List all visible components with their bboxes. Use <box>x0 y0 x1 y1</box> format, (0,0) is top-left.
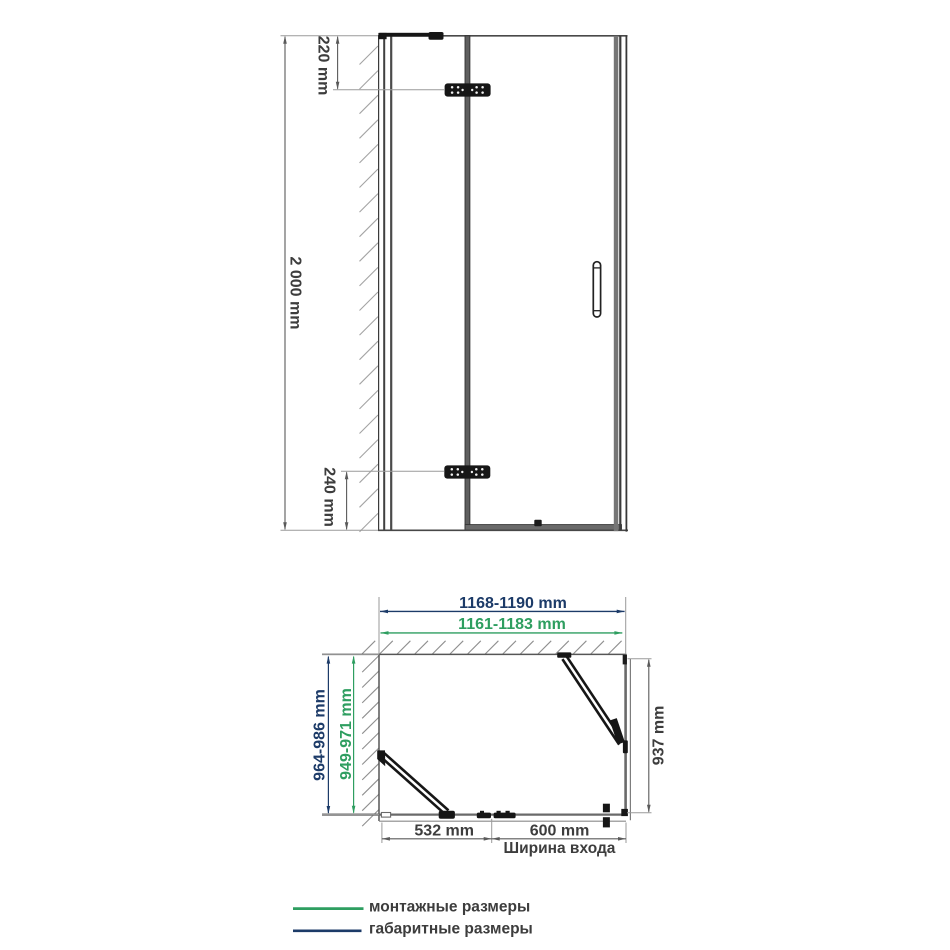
svg-text:532 mm: 532 mm <box>414 822 474 839</box>
svg-text:монтажные размеры: монтажные размеры <box>369 898 530 915</box>
svg-text:220 mm: 220 mm <box>315 36 332 96</box>
svg-text:240 mm: 240 mm <box>321 467 338 527</box>
svg-text:949-971 mm: 949-971 mm <box>338 688 355 780</box>
svg-text:600 mm: 600 mm <box>530 822 590 839</box>
svg-text:1168-1190 mm: 1168-1190 mm <box>459 595 567 612</box>
svg-text:2 000 mm: 2 000 mm <box>287 257 304 330</box>
svg-text:габаритные размеры: габаритные размеры <box>369 921 533 938</box>
svg-text:Ширина входа: Ширина входа <box>504 840 616 857</box>
svg-text:964-986 mm: 964-986 mm <box>311 689 328 781</box>
svg-text:1161-1183 mm: 1161-1183 mm <box>458 616 566 633</box>
svg-text:937 mm: 937 mm <box>650 706 667 766</box>
